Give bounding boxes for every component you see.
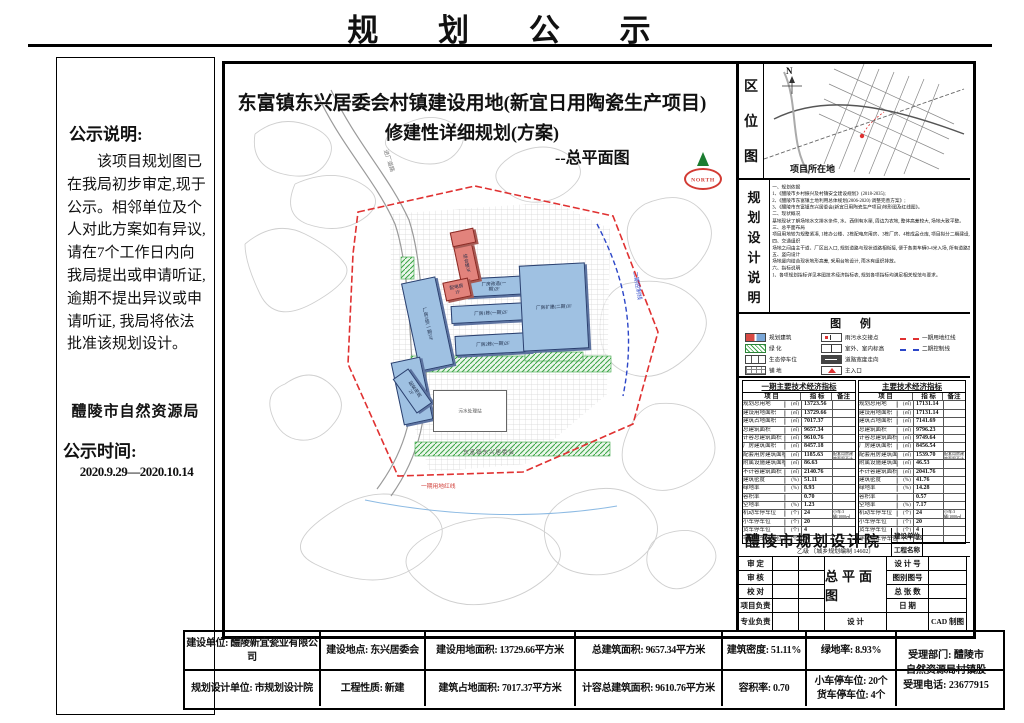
bureau-name: 醴陵市自然资源局: [57, 400, 214, 421]
indicator-row: 建筑密度(%)41.76: [859, 477, 965, 485]
planned-building-swatch: [745, 333, 766, 342]
legend-item: 铺 地: [745, 365, 821, 376]
indicator-row: 空地率(%)7.17: [859, 502, 965, 510]
legend-box: 图 例 规划建筑 绿 化 生态停车位 铺 地 雨污水交接点 室外、室内标高 道路…: [739, 314, 970, 378]
main-entrance-swatch: [821, 366, 842, 375]
legend-title: 图 例: [739, 315, 970, 331]
building-sewage-station: 污水处理站: [433, 390, 507, 432]
indicator-row: 附属设施建筑面积(㎡)86.63: [743, 460, 855, 468]
indicator-row: 机动车停车位(个)24小车:3辆/1000㎡ 货车:1辆/3000㎡: [859, 510, 965, 518]
legend-item: 生态停车位: [745, 354, 821, 365]
indicator-tables: 一期主要技术经济指标 项 目指 标备注 规划总用地(㎡)13723.56 建设用…: [739, 378, 970, 528]
plan-title-line2: 修建性详细规划(方案): [233, 119, 711, 145]
indicator-row: 建设用地面积(㎡)13729.66: [743, 410, 855, 418]
indicator-row: 绿地率(%)8.93: [743, 485, 855, 493]
legend-item: 主入口: [821, 365, 901, 376]
phase1-table-title: 一期主要技术经济指标: [743, 381, 855, 393]
location-map-label: 区位图: [739, 64, 764, 178]
design-notes-box: 规划设计说明 一、规划依据1、《醴陵市乡村振兴及村镇安全建设规划》(2018-2…: [739, 180, 970, 314]
north-ring-icon: NORTH: [684, 168, 722, 190]
design-note-line: 场地竖向结合现状地形高差, 采用台地设计, 雨水有组织排放。: [772, 258, 969, 265]
design-note-line: 四、交通组织: [772, 237, 969, 244]
summary-cell: 工程性质: 新建: [321, 671, 426, 706]
drawing-frame: 厂房3栋(一期)3F 厂房改造(一期)2F 厂房1栋(一期)2F 厂房2栋(一期…: [222, 61, 976, 639]
elevation-swatch: [821, 344, 842, 353]
design-notes-body: 一、规划依据1、《醴陵市乡村振兴及村镇安全建设规划》(2018-2035);2、…: [770, 180, 970, 312]
indicator-row: 规划总用地(㎡)13723.56: [743, 401, 855, 409]
table-header: 项 目指 标备注: [859, 393, 965, 401]
indicator-row: 配套用房建筑面积(㎡)1539.70配套用房建筑面积不计容: [859, 452, 965, 460]
design-note-line: 场地之间由主干道、厂区出入口, 规划道路与现状道路相衔接, 便于各类车辆0-4米…: [772, 244, 969, 251]
indicator-row: 不计容建筑面积(㎡)2140.76: [743, 469, 855, 477]
indicator-row: 不计容建筑面积(㎡)2041.76: [859, 469, 965, 477]
indicator-row: 配套用房建筑面积(㎡)1185.63配套用房建筑面积不计容: [743, 452, 855, 460]
indicator-row: 容积率0.57: [859, 494, 965, 502]
period-label: 公示时间:: [63, 437, 214, 462]
indicator-row: 规划总用地(㎡)17131.14: [859, 401, 965, 409]
design-note-line: 项目用地较为规整紧凑, 1栋办公楼、2栋配电房用房、3栋厂房、4栋成品仓库, 项…: [772, 231, 969, 238]
indicator-row: 附属设施建筑面积(㎡)46.53: [859, 460, 965, 468]
summary-cell: 建设单位: 醴陵新宜瓷业有限公司: [185, 632, 321, 669]
summary-cell: 容积率: 0.70: [723, 671, 807, 706]
location-map: N 项目所在地: [764, 64, 970, 178]
indicator-row: 绿地率(%)14.28: [859, 485, 965, 493]
sheet-name: 总平面图: [825, 557, 887, 613]
notice-heading: 公示说明:: [69, 120, 214, 145]
indicator-row: 计容总建筑面积(㎡)9610.76: [743, 435, 855, 443]
location-map-box: 区位图 N 项目所在地: [739, 64, 970, 180]
table-header: 项 目指 标备注: [743, 393, 855, 401]
summary-cell: 建筑密度: 51.11%: [723, 632, 807, 669]
phase1-boundary-label: 一期用地红线: [421, 482, 469, 493]
indicator-row: 厂房建筑面积(㎡)8457.18: [743, 443, 855, 451]
summary-cell: 总建筑面积: 9657.34平方米: [576, 632, 723, 669]
indicator-row: 小车停车位(个)20: [859, 519, 965, 527]
summary-cell: 规划设计单位: 市规划设计院: [185, 671, 321, 706]
notice-body: 该项目规划图已在我局初步审定,现于公示。相邻单位及个人对此方案如有异议, 请在7…: [67, 151, 208, 356]
legend-item: 室外、室内标高: [821, 343, 901, 354]
title-block-grid: 审 定 总平面图 设 计 号 审 核 图别图号 校 对 总 张 数 项目负责 日…: [739, 557, 970, 630]
right-panel: 区位图 N 项目所在地: [736, 64, 970, 630]
design-note-line: 1、各项规划指标详见本图技术经济指标表, 规划各项指标均满足相关规范与要求。: [772, 271, 969, 278]
title-divider: [28, 44, 992, 47]
legend-item: 规划建筑: [745, 332, 821, 343]
village-label: 东富镇东兴居委会: [463, 448, 535, 459]
legend-item: 二期控制线: [900, 343, 966, 354]
indicator-row: 总建筑面积(㎡)9796.23: [859, 427, 965, 435]
legend-item: 一期用地红线: [900, 332, 966, 343]
indicator-row: 建筑占地面积(㎡)7141.69: [859, 418, 965, 426]
design-note-line: 基地现状了解场地水文排水条件, 水、西侧有水渠, 周边为农地, 整体高差较大, …: [772, 217, 969, 224]
north-arrow: NORTH: [681, 152, 725, 196]
overall-indicator-table: 主要技术经济指标 项 目指 标备注 规划总用地(㎡)17131.14 建设用地面…: [858, 380, 966, 544]
acceptance-cell: 受理部门: 醴陵市 自然资源局村镇股 受理电话: 23677915: [889, 632, 1003, 708]
phase1-indicator-table: 一期主要技术经济指标 项 目指 标备注 规划总用地(㎡)13723.56 建设用…: [742, 380, 856, 544]
legend-item: 雨污水交接点: [821, 332, 901, 343]
design-note-line: 1、《醴陵市乡村振兴及村镇安全建设规划》(2018-2035);: [772, 190, 969, 197]
title-block-mini-table: 建设单位 工程名称: [891, 528, 970, 556]
road-width-swatch: [821, 355, 842, 364]
indicator-row: 总建筑面积(㎡)9657.34: [743, 427, 855, 435]
summary-cell: 计容总建筑面积: 9610.76平方米: [576, 671, 723, 706]
summary-cell: 建设用地面积: 13729.66平方米: [426, 632, 576, 669]
site-plan: 厂房3栋(一期)3F 厂房改造(一期)2F 厂房1栋(一期)2F 厂房2栋(一期…: [225, 64, 736, 630]
design-institute-grade: 乙级 〔城乡规划编制 14602〕: [797, 547, 874, 556]
summary-cell: 绿地率: 8.93%: [807, 632, 897, 669]
period-dates: 2020.9.29—2020.10.14: [59, 464, 214, 480]
summary-cell: 小车停车位: 20个 货车停车位: 4个: [807, 671, 897, 706]
overall-table-title: 主要技术经济指标: [859, 381, 965, 393]
plan-title-line1: 东富镇东兴居委会村镇建设用地(新宜日用陶瓷生产项目): [233, 88, 711, 115]
phase1-redline-swatch: [900, 338, 919, 340]
design-note-line: 一、规划依据: [772, 183, 969, 190]
summary-cell: 建筑占地面积: 7017.37平方米: [426, 671, 576, 706]
legend-item: 道路宽度走向: [821, 354, 901, 365]
notice-sidebar: 公示说明: 该项目规划图已在我局初步审定,现于公示。相邻单位及个人对此方案如有异…: [56, 57, 215, 715]
design-note-line: 五、竖向设计: [772, 251, 969, 258]
location-north-label: N: [786, 66, 793, 76]
indicator-row: 建设用地面积(㎡)17131.14: [859, 410, 965, 418]
summary-table: 建设单位: 醴陵新宜瓷业有限公司建设地点: 东兴居委会建设用地面积: 13729…: [183, 630, 1005, 710]
building-factory-2: 厂房2栋(一期)2F: [455, 332, 532, 356]
greenery-swatch: [745, 344, 766, 353]
indicator-row: 厂房建筑面积(㎡)8456.54: [859, 443, 965, 451]
design-note-line: 3、《醴陵市东富镇东兴居委会(新宜日用陶瓷生产项目)地形图及红线图》。: [772, 204, 969, 211]
phase2-line-swatch: [900, 349, 919, 351]
location-map-graphic: [764, 64, 967, 176]
design-notes-label: 规划设计说明: [739, 180, 770, 312]
summary-cell: 建设地点: 东兴居委会: [321, 632, 426, 669]
indicator-row: 建筑占地面积(㎡)7017.37: [743, 418, 855, 426]
design-note-line: 2、《醴陵市东富镇土地利用总体规划(2006-2020) 调整完善方案》;: [772, 197, 969, 204]
indicator-row: 计容总建筑面积(㎡)9749.64: [859, 435, 965, 443]
design-note-line: 六、指标说明: [772, 265, 969, 272]
indicator-row: 小车停车位(个)20: [743, 519, 855, 527]
title-block: 醴陵市规划设计院 乙级 〔城乡规划编制 14602〕 建设单位 工程名称 审 定…: [739, 528, 970, 630]
eco-parking-swatch: [745, 355, 766, 364]
indicator-row: 机动车停车位(个)24小车:3辆/1000㎡ 货车:1辆/3000㎡: [743, 510, 855, 518]
indicator-row: 容积率0.70: [743, 494, 855, 502]
drainage-point-swatch: [821, 333, 842, 342]
north-arrow-icon: [697, 152, 709, 166]
paving-swatch: [745, 366, 766, 375]
design-note-line: 三、总平面布局: [772, 224, 969, 231]
legend-item: 绿 化: [745, 343, 821, 354]
indicator-row: 空地率(%)1.23: [743, 502, 855, 510]
indicator-row: 建筑密度(%)51.11: [743, 477, 855, 485]
design-note-line: 二、现状概况: [772, 210, 969, 217]
building-factory-expansion: 厂房扩建(二期)3F: [519, 262, 589, 351]
site-location-label: 项目所在地: [790, 162, 835, 175]
